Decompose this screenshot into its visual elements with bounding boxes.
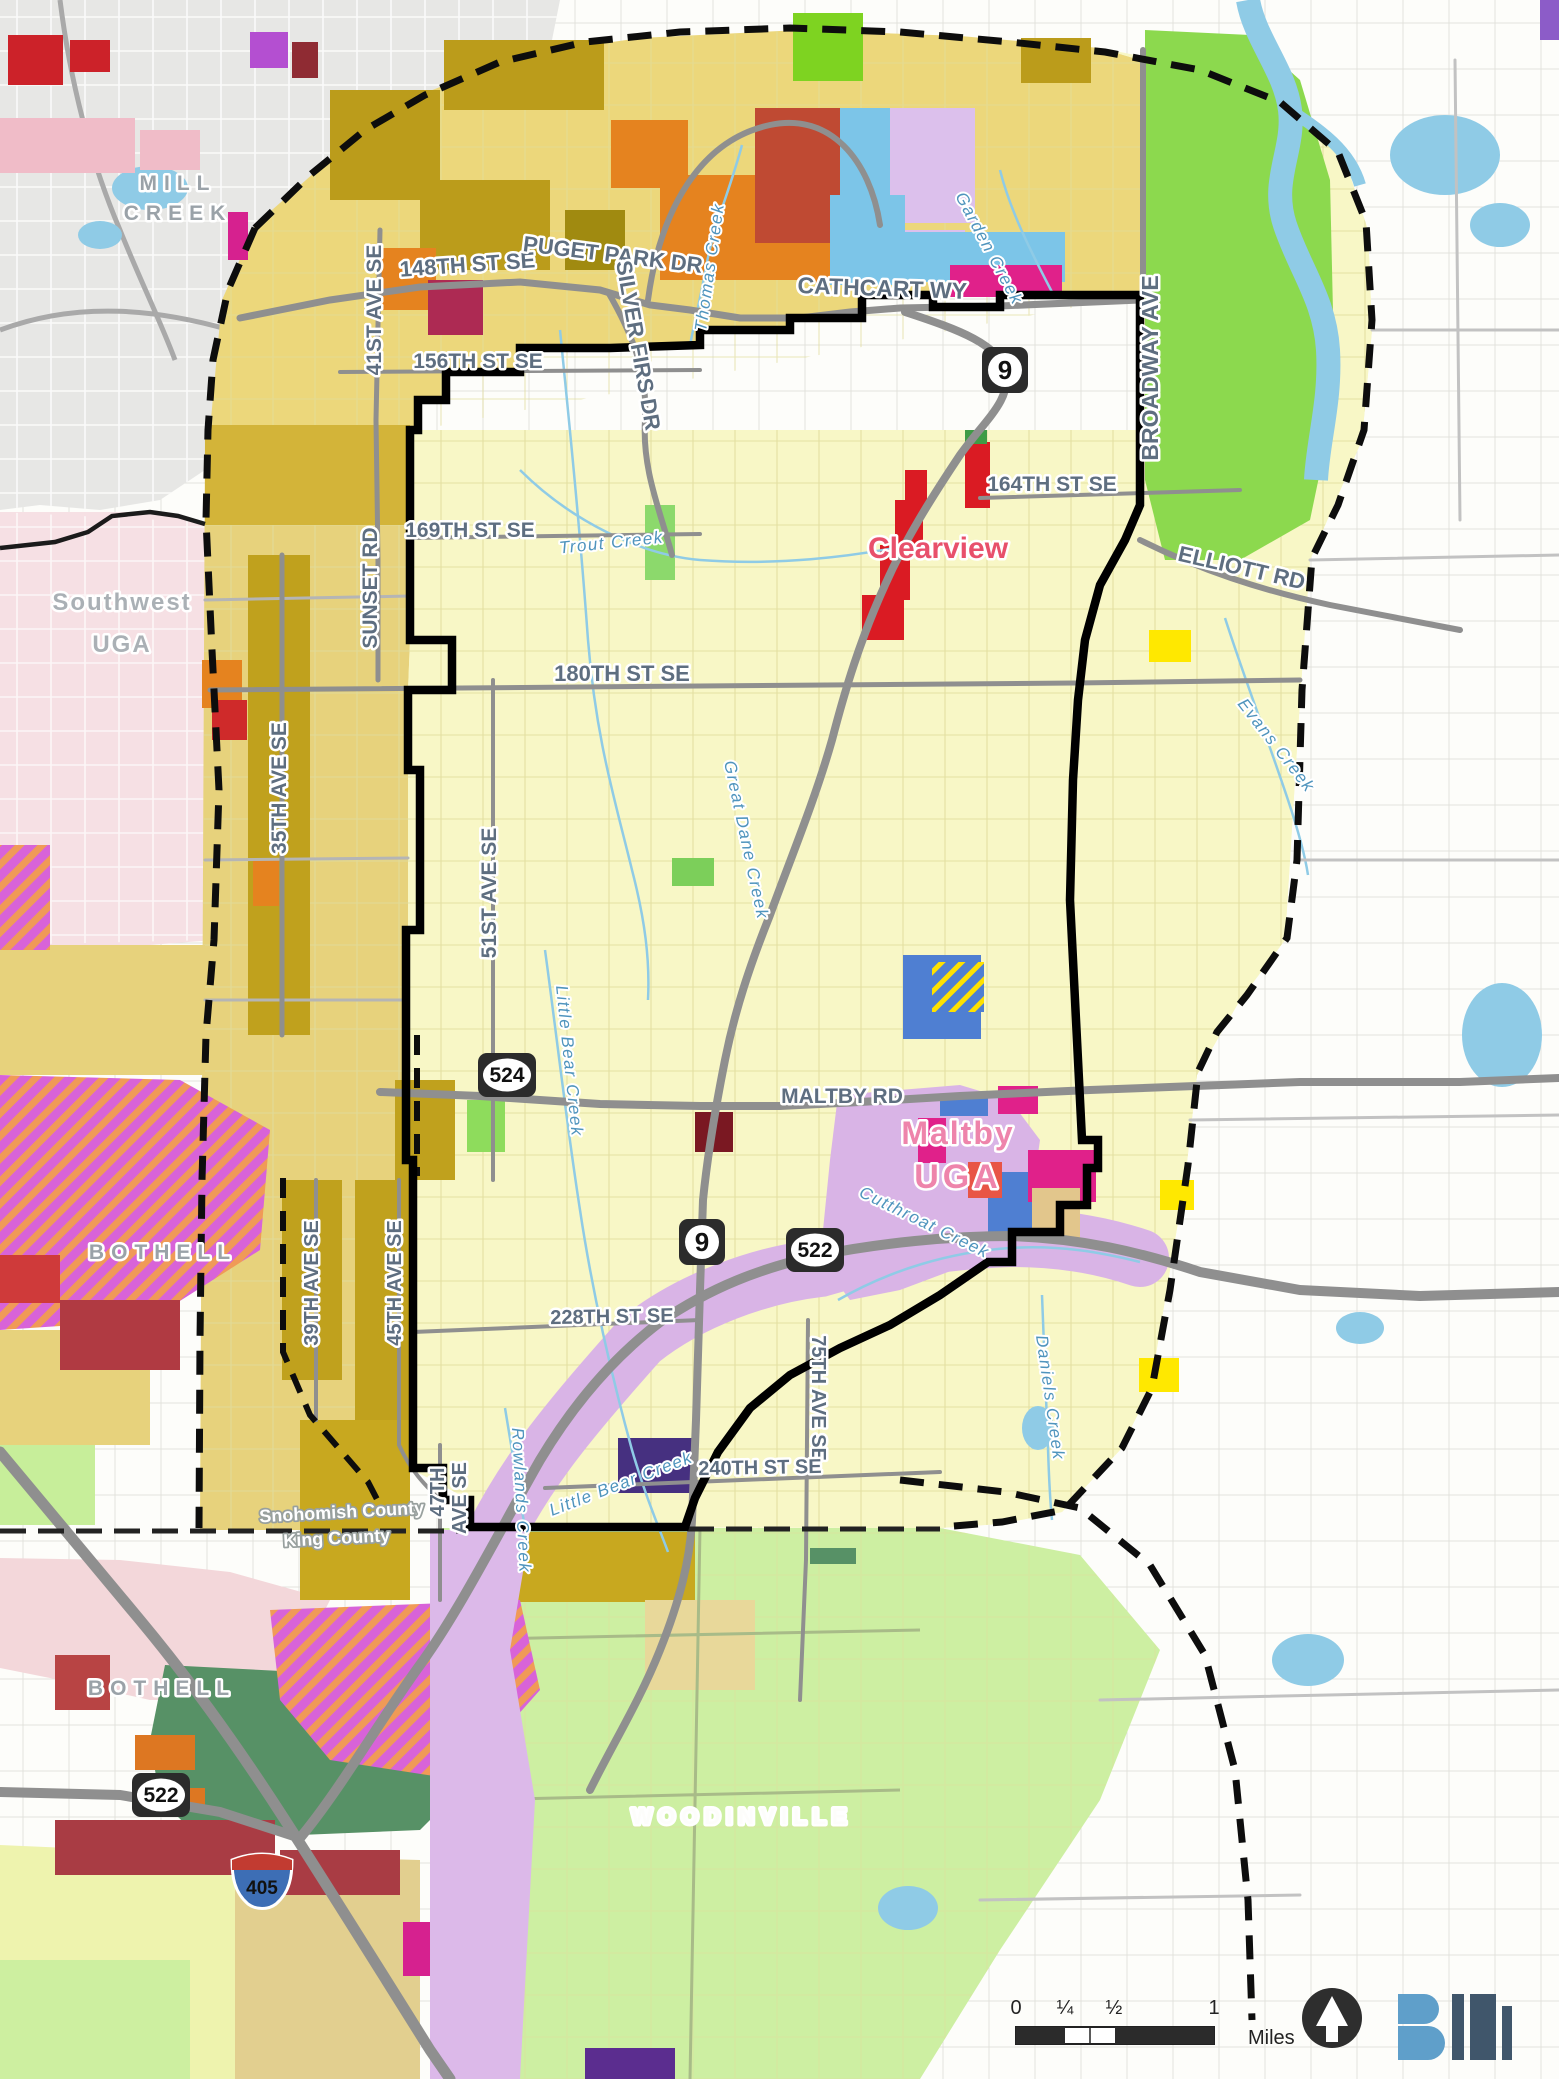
scale-bar-segment: [1016, 2027, 1065, 2044]
community-label: Clearview: [868, 532, 1009, 565]
zoning-patch: [70, 40, 110, 72]
shield-number: 522: [143, 1784, 178, 1807]
zoning-patch: [1160, 1180, 1194, 1210]
zoning-patch: [467, 1100, 505, 1152]
zoning-patch: [0, 1255, 60, 1303]
road-label: 180TH ST SE: [554, 661, 690, 686]
lake: [1470, 203, 1530, 247]
shield-number: 9: [695, 1227, 709, 1257]
city-label: MILL: [140, 172, 217, 195]
lake: [1272, 1634, 1344, 1686]
road-label: BROADWAY AVE: [1137, 275, 1163, 460]
road-label: 45TH AVE SE: [384, 1220, 406, 1346]
road-label: 75TH AVE SE: [807, 1335, 829, 1461]
hatched-patch: [0, 845, 50, 950]
lake: [78, 221, 122, 249]
road-label: 156TH ST SE: [413, 350, 543, 373]
zoning-patch: [444, 40, 604, 110]
logo-b-top: [1398, 1994, 1439, 2024]
sr9-south-shield: 9: [679, 1219, 725, 1265]
berk-logo: [1398, 1994, 1512, 2060]
sr522-shield: 522: [786, 1228, 844, 1272]
zoning-patch: [60, 1300, 180, 1370]
community-label: Maltby: [901, 1115, 1014, 1151]
zoning-patch: [0, 1960, 190, 2079]
zoning-patch: [810, 1548, 856, 1564]
lake: [1390, 115, 1500, 195]
road-label: 164TH ST SE: [987, 473, 1117, 496]
zoning-patch: [250, 32, 288, 68]
scale-tick-label: ¼: [1057, 1997, 1074, 2019]
scale-bar-segment: [1115, 2027, 1214, 2044]
shield-number: 524: [489, 1064, 524, 1087]
zoning-patch: [585, 2048, 675, 2079]
community-label: UGA: [914, 1158, 1002, 1196]
city-label: BOTHELL: [88, 1677, 236, 1700]
city-label: BOTHELL: [89, 1241, 237, 1264]
road-label: 35TH AVE SE: [268, 722, 291, 854]
hatched-patch: [932, 962, 984, 1012]
road-label: 39TH AVE SE: [301, 1220, 323, 1346]
zoning-patch: [611, 120, 688, 188]
logo-bar: [1452, 1994, 1464, 2060]
uga-band-fill: [0, 945, 205, 1075]
shield-number: 9: [998, 355, 1012, 385]
zoning-patch: [840, 108, 890, 208]
zoning-patch: [135, 1735, 195, 1770]
logo-bar: [1470, 1994, 1496, 2060]
zoning-patch: [0, 118, 135, 173]
scale-tick-label: 1: [1208, 1997, 1219, 2019]
zoning-patch: [793, 13, 863, 81]
zoning-map: Thomas Creek Garden Creek Trout Creek Gr…: [0, 0, 1559, 2079]
sr524-shield: 524: [478, 1053, 536, 1097]
shield-number: 405: [246, 1878, 278, 1899]
zoning-patch: [253, 858, 279, 906]
zoning-patch: [905, 470, 927, 505]
scale-tick-label: ½: [1106, 1997, 1123, 2019]
zoning-patch: [8, 35, 63, 85]
road-label: MALTBY RD: [781, 1085, 903, 1108]
sr9-shield: 9: [982, 347, 1028, 393]
lake: [1336, 1312, 1384, 1344]
scale-tick-label: 0: [1010, 1997, 1021, 2019]
zoning-patch: [1540, 0, 1559, 40]
road-label: 228TH ST SE: [550, 1305, 674, 1329]
road-label: SUNSET RD: [359, 527, 382, 648]
zoning-patch: [830, 195, 905, 285]
sr522-west-shield: 522: [132, 1773, 190, 1817]
road-label: AVE SE: [449, 1462, 471, 1534]
road-label: 240TH ST SE: [698, 1456, 822, 1480]
zoning-patch: [280, 1850, 400, 1895]
zoning-patch: [1149, 630, 1191, 662]
zoning-patch: [672, 858, 714, 886]
logo-bar: [1502, 2006, 1512, 2060]
scale-unit-label: Miles: [1248, 2027, 1295, 2049]
shield-number: 522: [797, 1239, 832, 1262]
road-label: 169TH ST SE: [405, 519, 535, 542]
city-label: CREEK: [124, 202, 233, 225]
uga-label: Southwest: [52, 589, 191, 616]
lake: [1462, 983, 1542, 1087]
map-canvas: Thomas Creek Garden Creek Trout Creek Gr…: [0, 0, 1559, 2079]
road-label: 51ST AVE SE: [478, 828, 501, 959]
road-label: 47TH: [427, 1468, 449, 1517]
uga-label: UGA: [92, 631, 151, 658]
lake: [878, 1886, 938, 1930]
road-label: 41ST AVE SE: [363, 245, 386, 376]
zoning-patch: [292, 42, 318, 78]
city-label: WOODINVILLE: [631, 1804, 852, 1829]
zoning-patch: [140, 130, 200, 170]
north-arrow: [1302, 1988, 1362, 2048]
logo-b-bottom: [1398, 2026, 1445, 2060]
